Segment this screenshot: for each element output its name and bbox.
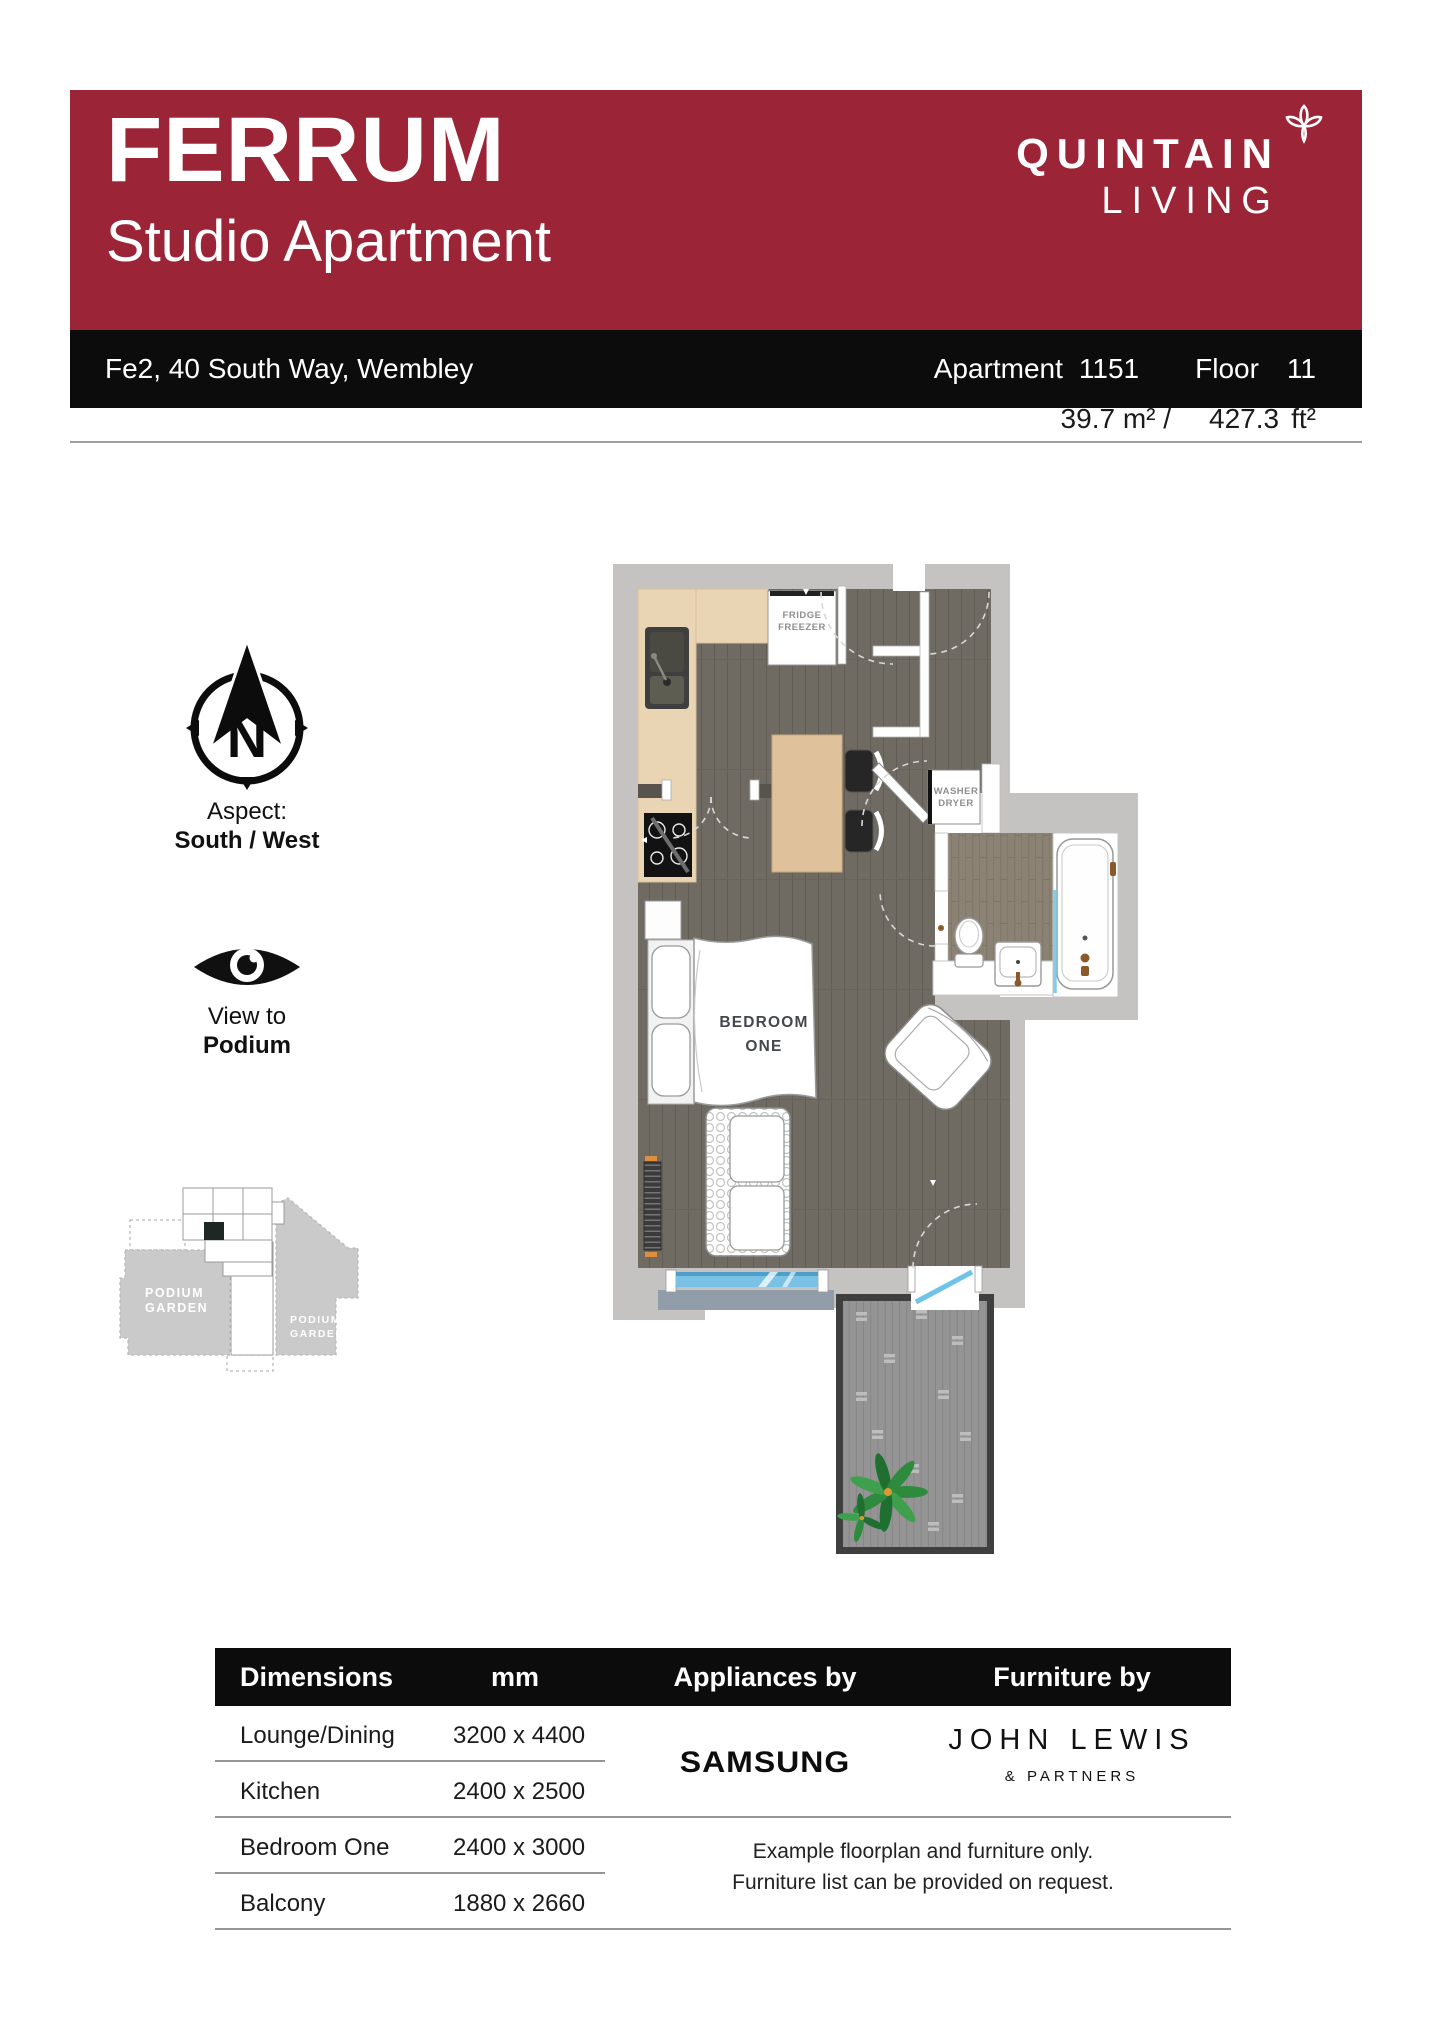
info-bar: Fe2, 40 South Way, Wembley Apartment 115… xyxy=(70,330,1362,408)
lounge-window xyxy=(658,1270,834,1310)
garden-label-2: PODIUM xyxy=(290,1314,341,1326)
trefoil-icon xyxy=(1282,102,1326,144)
area-imperial-unit: ft² xyxy=(1291,403,1316,435)
balcony xyxy=(829,1294,994,1554)
table-row-room: Bedroom One xyxy=(240,1834,389,1862)
col-appliances: Appliances by xyxy=(640,1648,890,1706)
garden-label-1: PODIUM xyxy=(145,1286,204,1300)
aspect-value: South / West xyxy=(147,827,347,855)
banner: FERRUM Studio Apartment QUINTAIN LIVING xyxy=(70,90,1362,330)
john-lewis-logo: JOHN LEWIS xyxy=(944,1724,1200,1757)
basin xyxy=(995,942,1041,987)
divider-line xyxy=(70,441,1362,443)
table-divider xyxy=(215,1928,1231,1930)
fridge-freezer: FRIDGE FREEZER xyxy=(768,591,836,665)
table-row-size: 3200 x 4400 xyxy=(453,1722,585,1750)
table-row-size: 1880 x 2660 xyxy=(453,1890,585,1918)
washer-label-1: WASHER xyxy=(934,786,979,797)
address: Fe2, 40 South Way, Wembley xyxy=(105,330,473,408)
view-value: Podium xyxy=(147,1032,347,1060)
bedroom-label-1: BEDROOM xyxy=(719,1014,808,1031)
podium-minimap: PODIUM GARDEN PODIUM GARDEN xyxy=(90,1150,380,1390)
table-header-bar: Dimensions mm Appliances by Furniture by xyxy=(215,1648,1231,1706)
unit-info: Apartment 1151 Floor 11 xyxy=(934,330,1316,408)
floor-number: 11 xyxy=(1287,353,1316,385)
table-row-size: 2400 x 2500 xyxy=(453,1778,585,1806)
table-divider xyxy=(215,1760,605,1762)
hob xyxy=(644,813,692,877)
col-furniture: Furniture by xyxy=(944,1648,1200,1706)
radiator xyxy=(644,1156,661,1257)
area-row: 39.7 m² / 427.3 ft² xyxy=(1061,403,1316,435)
development-title: FERRUM xyxy=(106,98,506,203)
col-mm: mm xyxy=(455,1648,575,1706)
bathtub xyxy=(1053,833,1118,997)
john-lewis-partners: & PARTNERS xyxy=(944,1768,1200,1785)
view-label: View to xyxy=(147,1003,347,1031)
floorplan: FRIDGE FREEZER xyxy=(600,555,1150,1560)
quintain-living-logo: QUINTAIN LIVING xyxy=(1016,130,1280,223)
unit-type-title: Studio Apartment xyxy=(106,208,551,275)
compass-icon: N xyxy=(172,610,322,795)
table-divider xyxy=(215,1816,1231,1818)
table-divider xyxy=(215,1872,605,1874)
compass-north-letter: N xyxy=(227,706,267,769)
apartment-label: Apartment xyxy=(934,353,1063,385)
fridge-label-1: FRIDGE xyxy=(783,610,822,621)
logo-wordmark-bottom: LIVING xyxy=(1016,180,1280,223)
area-imperial-value: 427.3 xyxy=(1209,403,1279,435)
disclaimer-line-2: Furniture list can be provided on reques… xyxy=(640,1871,1206,1895)
sink xyxy=(645,627,689,709)
apartment-number: 1151 xyxy=(1079,353,1139,385)
bedroom-label-2: ONE xyxy=(745,1038,782,1055)
fridge-label-2: FREEZER xyxy=(778,622,826,633)
disclaimer-line-1: Example floorplan and furniture only. xyxy=(640,1840,1206,1864)
apartment-location-marker xyxy=(204,1222,224,1240)
sofa xyxy=(706,1108,790,1256)
table-row-room: Kitchen xyxy=(240,1778,320,1806)
col-dimensions: Dimensions xyxy=(240,1648,393,1706)
area-metric: 39.7 m² / xyxy=(1061,403,1171,435)
eye-icon xyxy=(188,938,306,996)
table-row-room: Balcony xyxy=(240,1890,325,1918)
garden-label-1b: GARDEN xyxy=(145,1301,208,1315)
logo-wordmark-top: QUINTAIN xyxy=(1016,130,1280,178)
table-row-size: 2400 x 3000 xyxy=(453,1834,585,1862)
garden-label-2b: GARDEN xyxy=(290,1328,345,1340)
aspect-label: Aspect: xyxy=(147,798,347,826)
floorplan-sheet: FERRUM Studio Apartment QUINTAIN LIVING … xyxy=(0,0,1432,2025)
table-row-room: Lounge/Dining xyxy=(240,1722,395,1750)
washer-label-2: DRYER xyxy=(938,798,973,809)
samsung-logo: SAMSUNG xyxy=(640,1745,890,1779)
floor-label: Floor xyxy=(1195,353,1259,385)
